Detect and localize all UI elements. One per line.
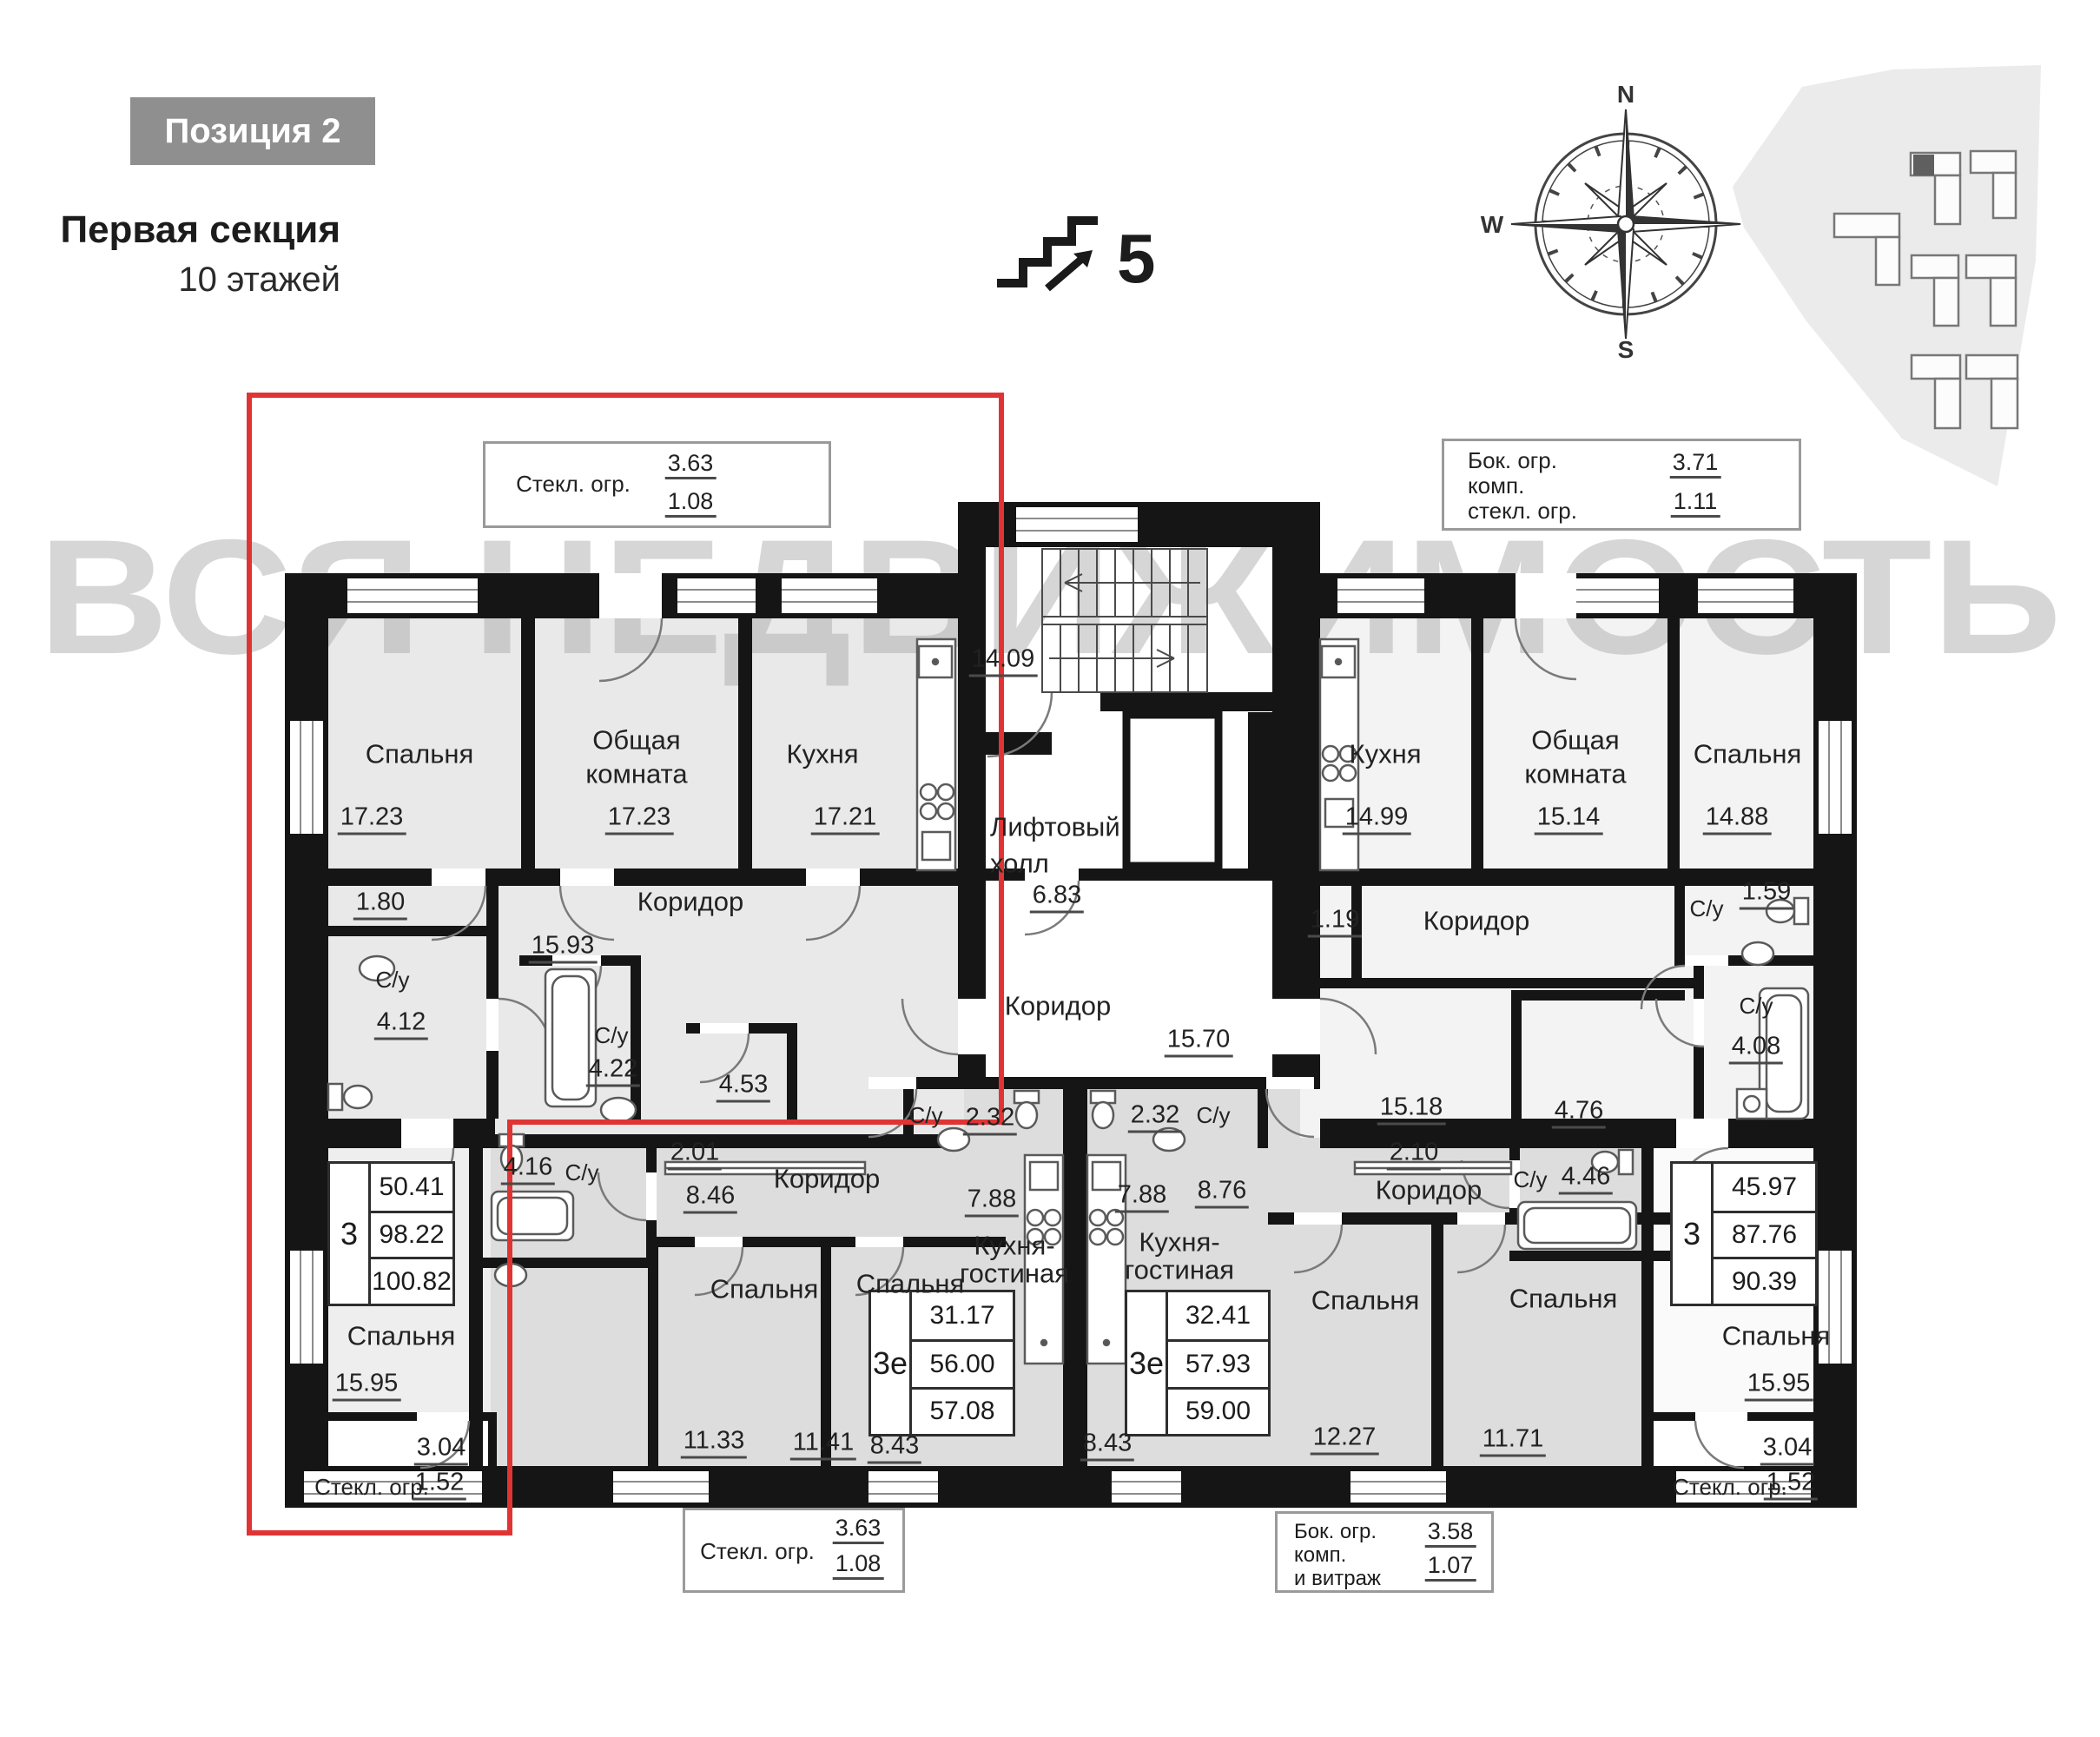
spec-table-apt-right: 3 45.97 87.76 90.39 <box>1670 1161 1818 1306</box>
elevator-shaft <box>1126 715 1218 866</box>
lift-hall-label-2: холл <box>990 850 1049 877</box>
site-plan-highlighted-building <box>1913 155 1934 175</box>
wc1-area-br: 2.32 <box>1128 1103 1182 1133</box>
current-floor-number: 5 <box>1117 219 1156 299</box>
room-label-bedroom1-br: Спальня <box>1311 1287 1420 1314</box>
spec-rooms-br: 3е <box>1127 1292 1166 1434</box>
glazing-area-br-top: 3.58 <box>1425 1520 1476 1548</box>
compass-rose: N E S W <box>1481 81 1768 363</box>
spec-total-right: 90.39 <box>1714 1257 1815 1304</box>
spec-table-apt-bottom-left: 3е 31.17 56.00 57.08 <box>868 1290 1015 1436</box>
position-badge: Позиция 2 <box>130 97 375 165</box>
wc2-label-tl: С/у <box>595 1024 629 1047</box>
room-label-bedroom2-tr: Спальня <box>1722 1323 1831 1350</box>
glazing-area-br-bottom: 1.07 <box>1425 1554 1476 1582</box>
spec-usable-bl: 56.00 <box>912 1339 1013 1386</box>
spec-usable-br: 57.93 <box>1168 1339 1268 1386</box>
room-label-bedroom2-bl: Спальня <box>856 1271 965 1298</box>
wc2-label-br: С/у <box>1514 1168 1548 1191</box>
compass-s-label: S <box>1618 336 1634 363</box>
glazing-label-tl: Стекл. огр. <box>516 472 631 495</box>
balcony-glazed-right: 1.52 <box>1764 1470 1818 1501</box>
kitchen-area-top-bl: 7.88 <box>965 1187 1019 1218</box>
room-label-bedroom1-bl: Спальня <box>710 1276 819 1303</box>
wc1-area-tr: 1.59 <box>1740 880 1793 910</box>
room-label-kitchen-tl: Кухня <box>787 741 859 768</box>
glazing-area-tr-bottom: 1.11 <box>1671 490 1720 518</box>
wc1-area-tl: 4.12 <box>374 1010 428 1040</box>
hall-area-tr: 15.18 <box>1377 1095 1446 1126</box>
corridor-label-tl: Коридор <box>637 888 743 915</box>
room-area-bedroom2-tr: 15.95 <box>1745 1371 1813 1402</box>
glazing-label-br-1: Бок. огр. <box>1294 1522 1377 1542</box>
room-area-kitchen-tl: 17.21 <box>811 805 880 835</box>
kitchen-area-bottom-bl: 8.43 <box>868 1434 921 1464</box>
room-label-kitchen-bl-1: Кухня- <box>974 1232 1054 1259</box>
corridor-label-br: Коридор <box>1376 1177 1482 1204</box>
room-area-bedroom1-bl: 11.33 <box>681 1429 747 1459</box>
glazing-label-tr-2: комп. <box>1468 474 1524 497</box>
corridor-area-tl: 15.93 <box>529 934 598 964</box>
wc1-label-br: С/у <box>1197 1104 1231 1126</box>
wc1-label-bl: С/у <box>565 1161 599 1184</box>
room-label-common-tl-2: комната <box>585 761 687 788</box>
closet-area-tr: 1.19 <box>1308 908 1362 938</box>
glazing-label-tr-1: Бок. огр. <box>1468 449 1557 472</box>
core-corridor-label: Коридор <box>1005 993 1111 1020</box>
spec-usable-left: 98.22 <box>371 1211 452 1258</box>
compass-n-label: N <box>1617 81 1634 108</box>
spec-usable-right: 87.76 <box>1714 1211 1815 1258</box>
wc2-area-br: 4.46 <box>1559 1165 1613 1195</box>
spec-living-right: 45.97 <box>1714 1164 1815 1211</box>
hall-area: 6.83 <box>1030 883 1084 914</box>
room-label-bedroom2-tl: Спальня <box>347 1323 456 1350</box>
glazing-label-br-3: и витраж <box>1294 1569 1381 1589</box>
spec-table-apt-left: 3 50.41 98.22 100.82 <box>327 1161 455 1306</box>
balcony-area-left: 3.04 <box>414 1436 468 1466</box>
floor-stairs-icon <box>997 221 1098 288</box>
floorplan-page: ВСЯ НЕДВИЖИМОСТЬ <box>0 0 2100 1737</box>
storage-area-tl: 4.53 <box>717 1073 770 1103</box>
compass-w-label: W <box>1481 211 1504 238</box>
glazing-area-tl-top: 3.63 <box>665 452 717 479</box>
spec-rooms-bl: 3е <box>871 1292 909 1434</box>
spec-living-bl: 31.17 <box>912 1292 1013 1339</box>
spec-total-left: 100.82 <box>371 1257 452 1304</box>
room-area-common-tr: 15.14 <box>1535 805 1603 835</box>
room-area-bedroom-tl: 17.23 <box>338 805 406 835</box>
room-label-bedroom2-br: Спальня <box>1509 1285 1618 1312</box>
spec-rooms-right: 3 <box>1673 1164 1711 1304</box>
glazing-area-tr-top: 3.71 <box>1670 451 1721 479</box>
wc1-label-tl: С/у <box>376 968 410 991</box>
wc2-area-bl: 2.32 <box>963 1106 1017 1136</box>
core-corridor-area: 15.70 <box>1165 1027 1233 1058</box>
glazing-area-tl-bottom: 1.08 <box>665 490 717 518</box>
room-area-bedroom2-br: 11.71 <box>1480 1427 1546 1457</box>
wardrobe-area-tr: 2.10 <box>1387 1140 1441 1171</box>
glazing-area-bl-bottom: 1.08 <box>833 1552 884 1580</box>
lift-hall-label-1: Лифтовый <box>990 814 1120 841</box>
spec-living-br: 32.41 <box>1168 1292 1268 1339</box>
spec-total-br: 59.00 <box>1168 1387 1268 1434</box>
room-area-bedroom-tr: 14.88 <box>1703 805 1772 835</box>
room-label-kitchen-br-1: Кухня- <box>1139 1229 1219 1256</box>
room-area-bedroom2-tl: 15.95 <box>333 1371 401 1402</box>
spec-table-apt-bottom-right: 3е 32.41 57.93 59.00 <box>1125 1290 1271 1436</box>
corridor-area-bl: 8.46 <box>683 1184 737 1214</box>
corridor-label-tr: Коридор <box>1423 908 1529 935</box>
kitchen-area-top-br: 7.88 <box>1115 1183 1169 1213</box>
hall-area-bl: 2.01 <box>668 1140 722 1171</box>
room-label-common-tr-1: Общая <box>1531 727 1619 754</box>
room-area-kitchen-tr: 14.99 <box>1343 805 1411 835</box>
wc1-label-tr: С/у <box>1690 897 1724 920</box>
balcony-glazed-left: 1.52 <box>413 1470 466 1501</box>
glazing-label-bl: Стекл. огр. <box>700 1540 815 1562</box>
room-area-bedroom2-bl: 11.41 <box>790 1430 856 1461</box>
wc2-label-tr: С/у <box>1740 994 1773 1017</box>
stairs-area: 14.09 <box>969 647 1038 677</box>
room-label-bedroom-tr: Спальня <box>1694 741 1802 768</box>
corridor-label-bl: Коридор <box>774 1166 880 1192</box>
closet-area-tl: 1.80 <box>353 890 407 921</box>
spec-living-left: 50.41 <box>371 1164 452 1211</box>
room-label-bedroom-tl: Спальня <box>366 741 474 768</box>
room-label-kitchen-bl-2: гостиная <box>960 1260 1069 1287</box>
kitchen-area-bottom-br: 8.43 <box>1080 1431 1134 1462</box>
room-area-common-tl: 17.23 <box>605 805 674 835</box>
balcony-area-right: 3.04 <box>1760 1436 1814 1466</box>
room-label-common-tl-1: Общая <box>592 727 680 754</box>
corridor-area-top-br: 8.76 <box>1195 1179 1249 1209</box>
room-label-common-tr-2: комната <box>1524 761 1626 788</box>
room-label-kitchen-tr: Кухня <box>1350 741 1422 768</box>
wc2-label-bl: С/у <box>909 1104 943 1126</box>
spec-total-bl: 57.08 <box>912 1387 1013 1434</box>
section-title: Первая секция <box>52 208 340 252</box>
glazing-area-bl-top: 3.63 <box>833 1516 884 1544</box>
storage-area-tr: 4.76 <box>1552 1099 1606 1129</box>
glazing-label-br-2: комп. <box>1294 1545 1346 1566</box>
room-label-kitchen-br-2: гостиная <box>1125 1257 1234 1284</box>
wc2-area-tr: 4.08 <box>1729 1034 1783 1065</box>
wc2-area-tl: 4.22 <box>586 1057 640 1087</box>
wc1-area-bl: 4.16 <box>501 1155 555 1186</box>
room-area-bedroom1-br: 12.27 <box>1311 1425 1379 1456</box>
spec-rooms-left: 3 <box>330 1164 368 1304</box>
glazing-label-tr-3: стекл. огр. <box>1468 499 1577 522</box>
floors-subtitle: 10 этажей <box>52 261 340 300</box>
site-plan <box>1733 65 2041 486</box>
